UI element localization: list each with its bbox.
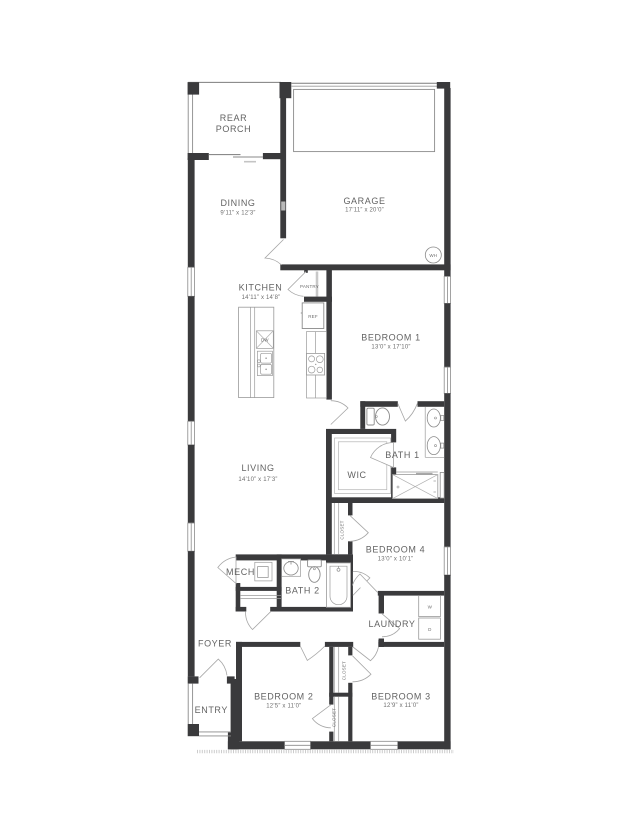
svg-text:D: D — [428, 627, 432, 632]
svg-text:17’11” x 20’0”: 17’11” x 20’0” — [345, 208, 384, 214]
svg-text:BEDROOM 3: BEDROOM 3 — [371, 692, 430, 702]
svg-text:CLOSET: CLOSET — [340, 520, 345, 539]
svg-text:9’11” x 12’3”: 9’11” x 12’3” — [220, 211, 255, 217]
svg-text:GARAGE: GARAGE — [343, 196, 385, 206]
svg-text:12’5” x 11’0”: 12’5” x 11’0” — [266, 704, 301, 710]
svg-text:BEDROOM 4: BEDROOM 4 — [366, 545, 425, 555]
svg-text:13’0” x 17’10”: 13’0” x 17’10” — [371, 345, 410, 351]
svg-text:WH: WH — [429, 253, 437, 258]
svg-text:BEDROOM 1: BEDROOM 1 — [361, 333, 420, 343]
svg-text:WIC: WIC — [347, 470, 366, 480]
svg-text:BATH 1: BATH 1 — [385, 450, 419, 460]
svg-text:14’10” x 17’3”: 14’10” x 17’3” — [238, 477, 277, 483]
svg-text:FOYER: FOYER — [198, 639, 232, 649]
svg-text:REF: REF — [308, 314, 318, 319]
svg-text:LIVING: LIVING — [241, 463, 274, 473]
svg-text:MECH: MECH — [226, 567, 255, 577]
svg-text:REAR: REAR — [220, 113, 247, 123]
svg-text:14’11” x 14’8”: 14’11” x 14’8” — [242, 295, 281, 301]
svg-text:CLOSET: CLOSET — [332, 708, 337, 727]
svg-text:ENTRY: ENTRY — [195, 705, 228, 715]
svg-text:W: W — [428, 605, 433, 610]
svg-text:LAUNDRY: LAUNDRY — [368, 619, 415, 629]
svg-text:13’0” x 10’1”: 13’0” x 10’1” — [378, 557, 414, 563]
svg-text:DW: DW — [261, 338, 269, 343]
svg-text:BEDROOM 2: BEDROOM 2 — [254, 692, 313, 702]
svg-text:PORCH: PORCH — [216, 124, 252, 134]
svg-text:DINING: DINING — [220, 198, 255, 208]
svg-text:KITCHEN: KITCHEN — [239, 283, 283, 293]
svg-text:CLOSET: CLOSET — [342, 661, 347, 680]
svg-text:PANTRY: PANTRY — [300, 284, 319, 289]
svg-text:BATH 2: BATH 2 — [285, 586, 319, 596]
svg-text:12’9” x 11’0”: 12’9” x 11’0” — [383, 703, 418, 709]
